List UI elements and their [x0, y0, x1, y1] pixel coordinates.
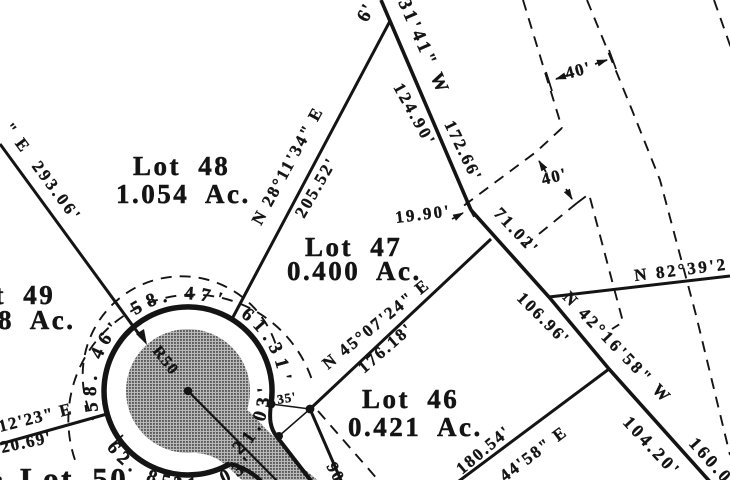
- svg-text:8 Ac.: 8 Ac.: [0, 305, 76, 335]
- svg-text:Lot 46: Lot 46: [362, 384, 459, 414]
- svg-text:Lot 50: Lot 50: [20, 461, 128, 480]
- svg-text:.: .: [0, 457, 5, 480]
- svg-text:0.400 Ac.: 0.400 Ac.: [287, 256, 422, 286]
- svg-text:1.054 Ac.: 1.054 Ac.: [116, 179, 251, 209]
- svg-text:0.421 Ac.: 0.421 Ac.: [348, 412, 483, 442]
- svg-text:Lot 48: Lot 48: [133, 151, 230, 181]
